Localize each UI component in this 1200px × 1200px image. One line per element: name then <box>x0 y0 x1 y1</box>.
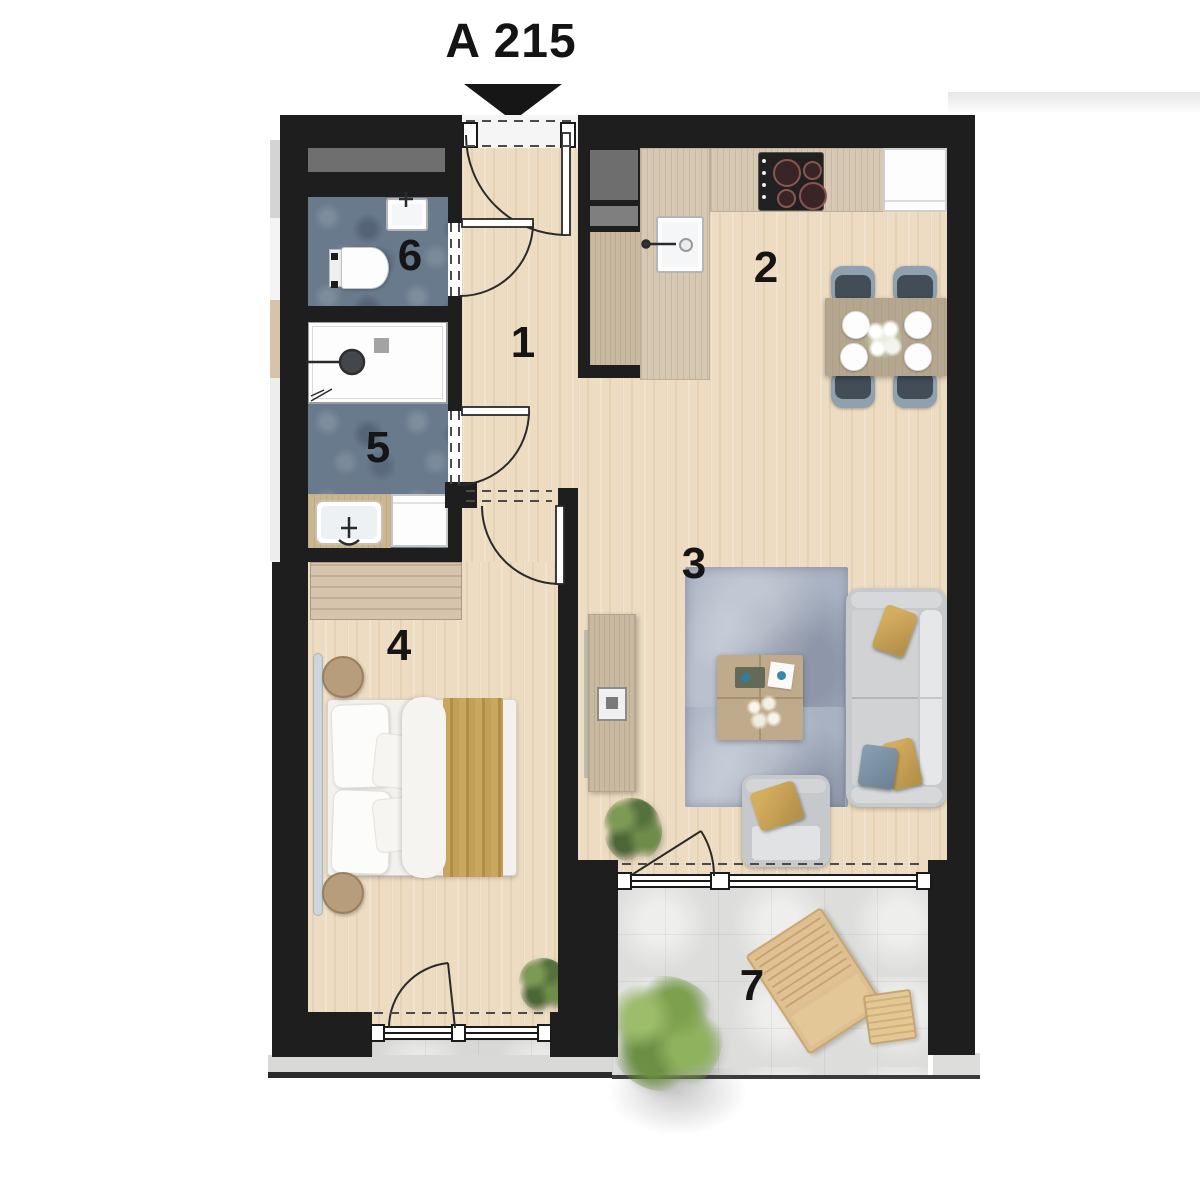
label-room-1: 1 <box>511 321 535 365</box>
label-room-4: 4 <box>387 624 411 668</box>
floor-plan: A 215 <box>0 0 1200 1200</box>
bath-door <box>457 407 529 485</box>
bedroom-door <box>482 506 564 584</box>
label-room-7: 7 <box>740 964 764 1008</box>
wc-door <box>460 219 533 296</box>
living-balcony-door <box>630 831 714 876</box>
shower-head-icon <box>340 350 364 374</box>
bedroom-balcony-door <box>389 963 455 1028</box>
label-room-2: 2 <box>754 246 778 290</box>
opening-dashes <box>374 121 926 1013</box>
label-room-3: 3 <box>682 542 706 586</box>
plan-linework <box>0 0 1200 1200</box>
label-room-6: 6 <box>398 234 422 278</box>
label-room-5: 5 <box>366 426 390 470</box>
